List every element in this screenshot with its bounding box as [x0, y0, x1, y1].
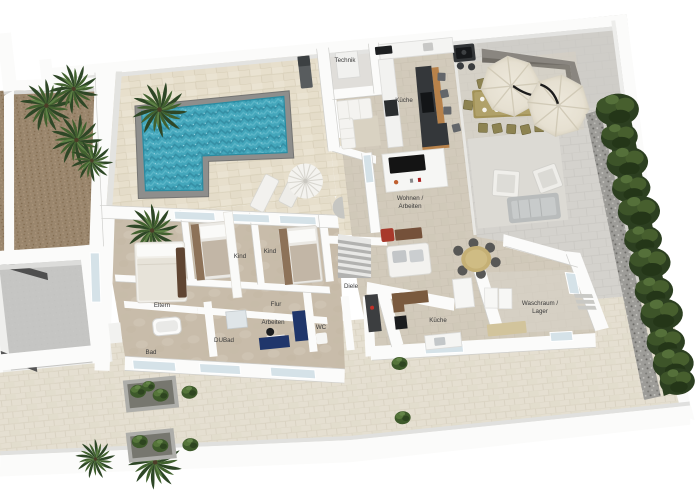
svg-text:Arbeiten: Arbeiten	[398, 203, 422, 210]
svg-text:Kind: Kind	[234, 253, 247, 260]
svg-text:Bad: Bad	[145, 349, 157, 356]
svg-text:Technik: Technik	[335, 57, 357, 64]
svg-text:Waschraum /: Waschraum /	[522, 300, 558, 307]
svg-text:Diele: Diele	[344, 283, 359, 290]
svg-text:Eltern: Eltern	[154, 302, 171, 309]
svg-text:Flur: Flur	[271, 301, 282, 308]
svg-text:Lager: Lager	[532, 308, 548, 315]
svg-text:Küche: Küche	[395, 97, 413, 104]
svg-text:Küche: Küche	[429, 317, 447, 324]
svg-text:DUBad: DUBad	[214, 337, 235, 344]
svg-text:Kind: Kind	[264, 248, 277, 255]
svg-text:Wohnen /: Wohnen /	[397, 195, 424, 202]
svg-text:WC: WC	[316, 324, 327, 331]
svg-text:Arbeiten: Arbeiten	[261, 319, 285, 326]
